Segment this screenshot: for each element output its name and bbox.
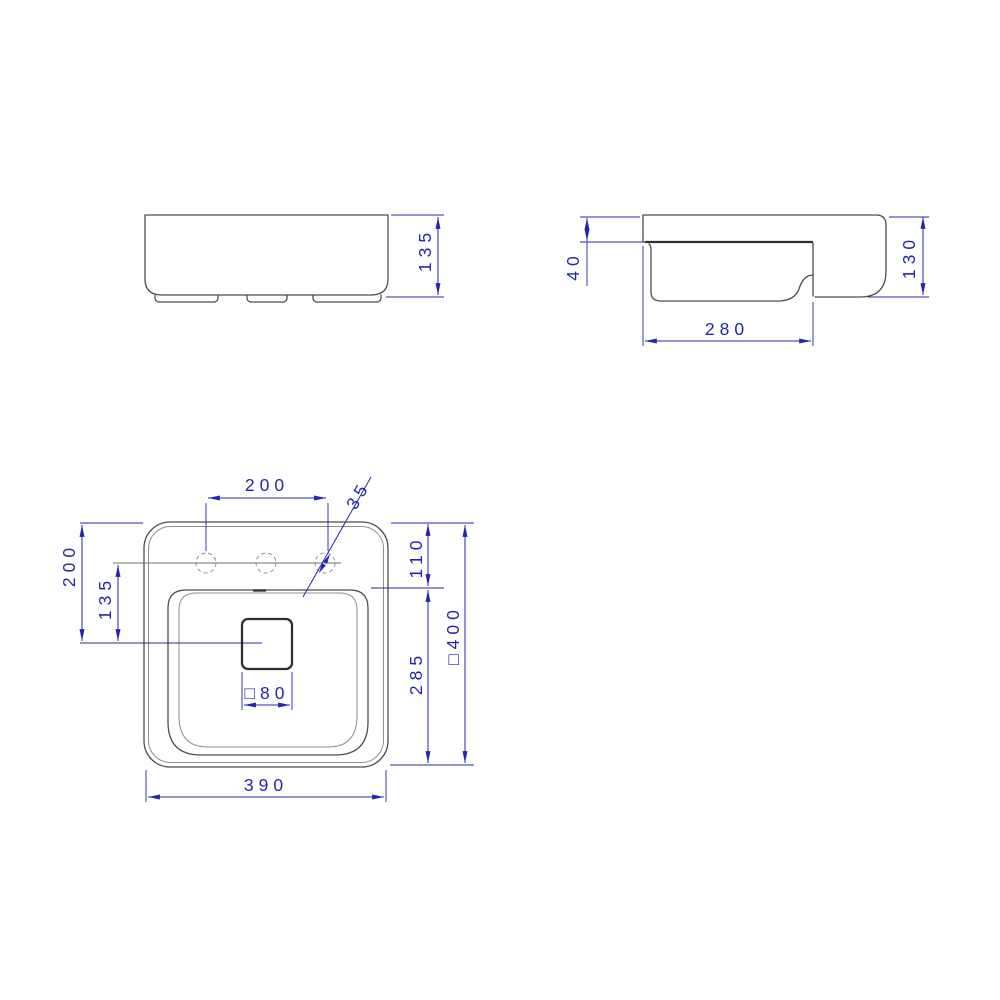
front-foot-left: [155, 295, 218, 302]
side-view: 40 280 130: [563, 215, 929, 346]
dim-apron-height-label: 40: [563, 251, 583, 280]
dim-side-height-label: 130: [899, 235, 919, 279]
dim-left-depth-to-drain-label: 200: [59, 543, 79, 587]
plan-inner-rim: [149, 527, 384, 763]
dim-hole-diameter-label: 35: [342, 477, 374, 513]
dim-apron-height: 40: [563, 217, 646, 286]
dim-overall-depth-label: □400: [443, 605, 463, 665]
dim-overall-width-label: 390: [244, 775, 288, 795]
dim-rim-to-bowl-label: 110: [406, 536, 426, 579]
front-foot-right: [313, 295, 381, 302]
plan-bowl-outline: [168, 590, 368, 755]
washbasin-dimension-drawing: 135 40 280 130: [0, 0, 1000, 1000]
front-view: 135: [145, 215, 444, 302]
dim-hole-spacing: 200: [206, 475, 328, 551]
dim-rim-to-bowl: 110: [371, 523, 474, 588]
front-foot-middle: [247, 295, 287, 302]
dim-drain-size: □80: [242, 672, 292, 710]
drain-square: [242, 619, 292, 669]
front-body-outline: [145, 215, 388, 295]
dim-basin-depth-label: 280: [705, 319, 749, 339]
technical-drawing-sheet: 135 40 280 130: [0, 0, 1000, 1000]
side-outer-profile: [643, 215, 886, 297]
plan-view: 200 35 110 285 □400 390: [59, 475, 474, 802]
dim-hole-spacing-label: 200: [245, 475, 289, 495]
dim-drain-size-label: □80: [244, 683, 289, 703]
dim-basin-depth: 280: [643, 246, 813, 346]
dim-front-height: 135: [386, 215, 444, 297]
side-bowl-underside: [649, 244, 813, 301]
dim-bowl-front-depth-label: 285: [406, 651, 426, 695]
dim-overall-width: 390: [146, 770, 386, 802]
dim-front-height-label: 135: [415, 228, 435, 272]
dim-hole-diameter: 35: [303, 477, 374, 597]
hole-diameter-arrow-lower: [319, 563, 326, 573]
dim-side-height: 130: [868, 217, 929, 297]
dim-holes-to-drain-label: 135: [95, 576, 115, 620]
dim-overall-depth: □400: [443, 525, 465, 763]
dim-holes-to-drain: 135: [95, 565, 118, 641]
